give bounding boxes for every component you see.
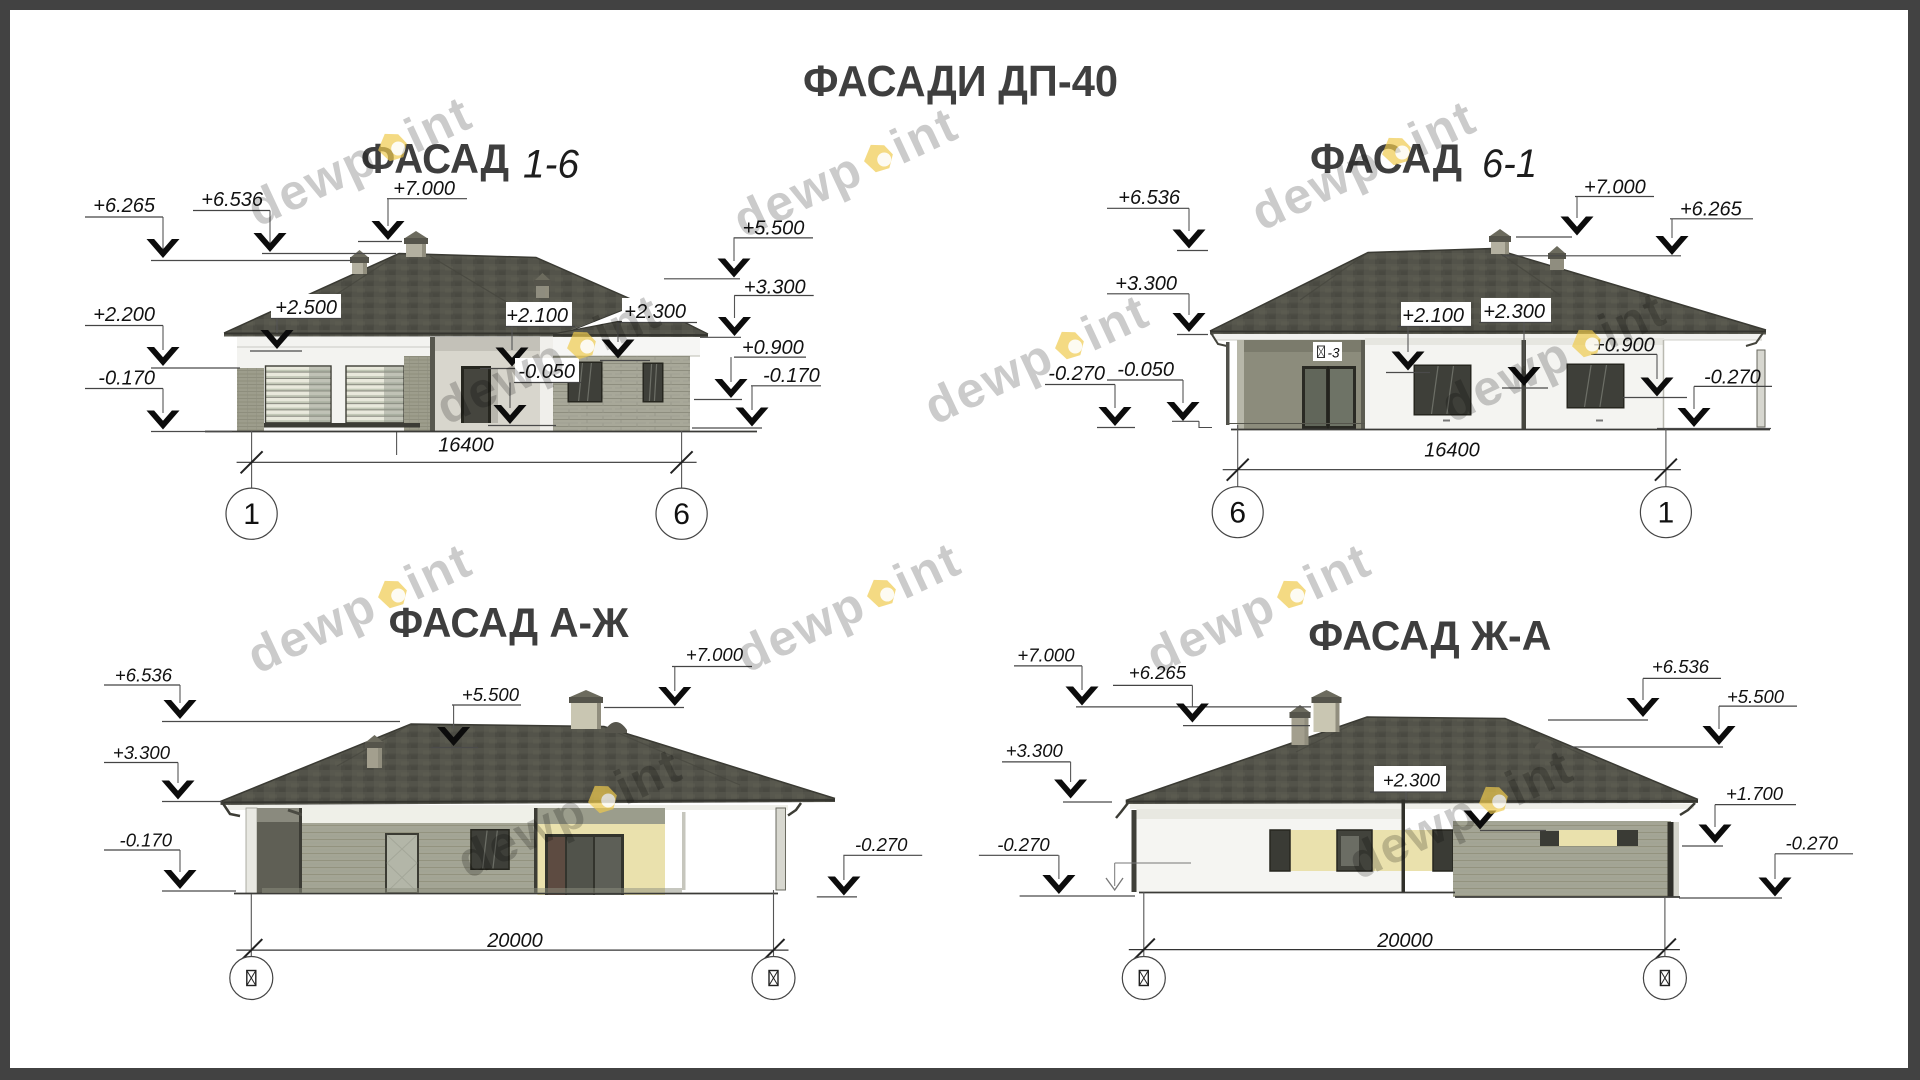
svg-text:-0.050: -0.050 [1117,359,1174,381]
svg-text:6-1: 6-1 [1482,142,1537,186]
svg-text:+5.500: +5.500 [1727,686,1785,707]
svg-text:1: 1 [243,498,260,531]
svg-text:-0.170: -0.170 [763,365,820,387]
svg-text:+2.300: +2.300 [1383,770,1441,791]
svg-text:ФАСАД Ж-А: ФАСАД Ж-А [1308,612,1551,659]
svg-text:+6.265: +6.265 [1680,199,1743,221]
svg-text:+5.500: +5.500 [462,684,520,705]
svg-text:16400: 16400 [438,435,494,457]
svg-text:+2.300: +2.300 [1483,301,1545,323]
svg-text:+1.700: +1.700 [1726,783,1784,804]
svg-text:-3: -3 [1328,346,1340,361]
svg-text:-0.270: -0.270 [855,834,908,855]
svg-text:20000: 20000 [486,930,543,952]
svg-text:+7.000: +7.000 [1017,645,1075,666]
svg-text:-0.170: -0.170 [120,830,173,851]
svg-text:-0.170: -0.170 [98,368,155,390]
svg-text:16400: 16400 [1424,440,1480,462]
svg-text:6: 6 [673,498,690,531]
svg-text:+2.200: +2.200 [93,304,155,326]
svg-text:+3.300: +3.300 [113,742,171,763]
svg-text:+7.000: +7.000 [1584,177,1646,199]
svg-text:+6.536: +6.536 [1118,187,1181,209]
svg-text:-0.270: -0.270 [1786,833,1839,854]
svg-text:+6.265: +6.265 [93,195,156,217]
svg-text:+0.900: +0.900 [742,337,804,359]
svg-text:6: 6 [1229,497,1246,530]
svg-text:+2.100: +2.100 [1402,305,1464,327]
svg-text:-0.270: -0.270 [997,834,1050,855]
svg-text:+2.500: +2.500 [275,297,337,319]
svg-text:+2.100: +2.100 [506,305,568,327]
svg-text:-0.270: -0.270 [1704,367,1761,389]
svg-text:+6.536: +6.536 [1652,656,1710,677]
svg-text:ФАСАДИ ДП-40: ФАСАДИ ДП-40 [803,57,1118,106]
svg-text:1-6: 1-6 [523,143,580,187]
svg-text:+7.000: +7.000 [393,178,455,200]
svg-text:20000: 20000 [1376,930,1433,952]
svg-text:+6.536: +6.536 [115,665,173,686]
svg-text:+3.300: +3.300 [1006,740,1064,761]
svg-text:1: 1 [1658,497,1675,530]
